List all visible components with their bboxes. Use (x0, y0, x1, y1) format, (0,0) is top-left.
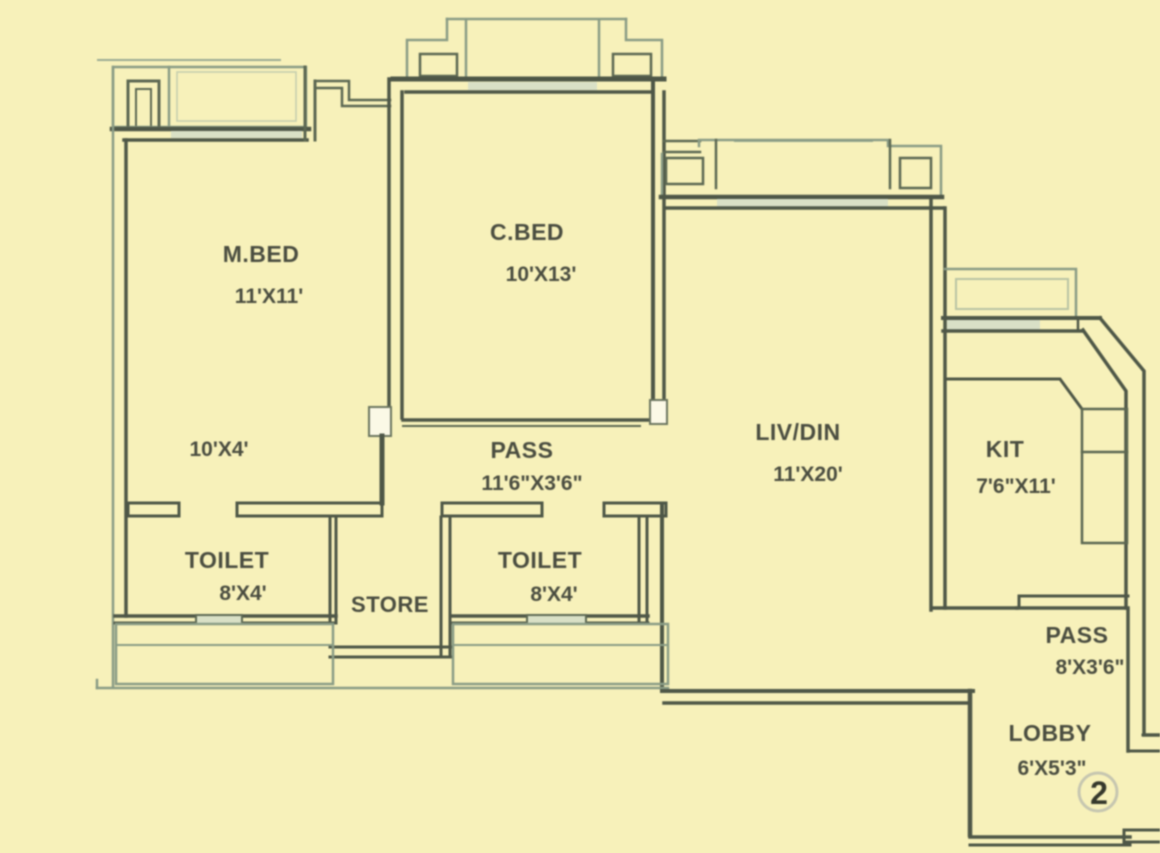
svg-text:TOILET: TOILET (498, 547, 582, 573)
svg-text:11'6"X3'6": 11'6"X3'6" (481, 472, 582, 495)
svg-text:C.BED: C.BED (490, 219, 564, 245)
svg-text:PASS: PASS (1046, 622, 1109, 648)
svg-text:LOBBY: LOBBY (1009, 720, 1092, 746)
svg-text:PASS: PASS (491, 437, 554, 463)
svg-text:TOILET: TOILET (185, 547, 269, 573)
svg-text:7'6"X11': 7'6"X11' (976, 475, 1056, 498)
svg-text:6'X5'3": 6'X5'3" (1018, 757, 1087, 780)
svg-text:11'X11': 11'X11' (235, 285, 303, 308)
svg-text:2: 2 (1090, 775, 1108, 811)
svg-text:LIV/DIN: LIV/DIN (755, 419, 840, 445)
svg-text:8'X3'6": 8'X3'6" (1056, 656, 1125, 679)
svg-text:10'X4': 10'X4' (189, 438, 248, 461)
svg-text:8'X4': 8'X4' (219, 582, 266, 605)
svg-text:11'X20': 11'X20' (773, 463, 843, 486)
svg-text:10'X13': 10'X13' (506, 263, 577, 286)
svg-text:KIT: KIT (986, 436, 1025, 462)
svg-text:STORE: STORE (351, 592, 429, 617)
svg-text:M.BED: M.BED (223, 241, 300, 267)
svg-text:8'X4': 8'X4' (530, 583, 577, 606)
